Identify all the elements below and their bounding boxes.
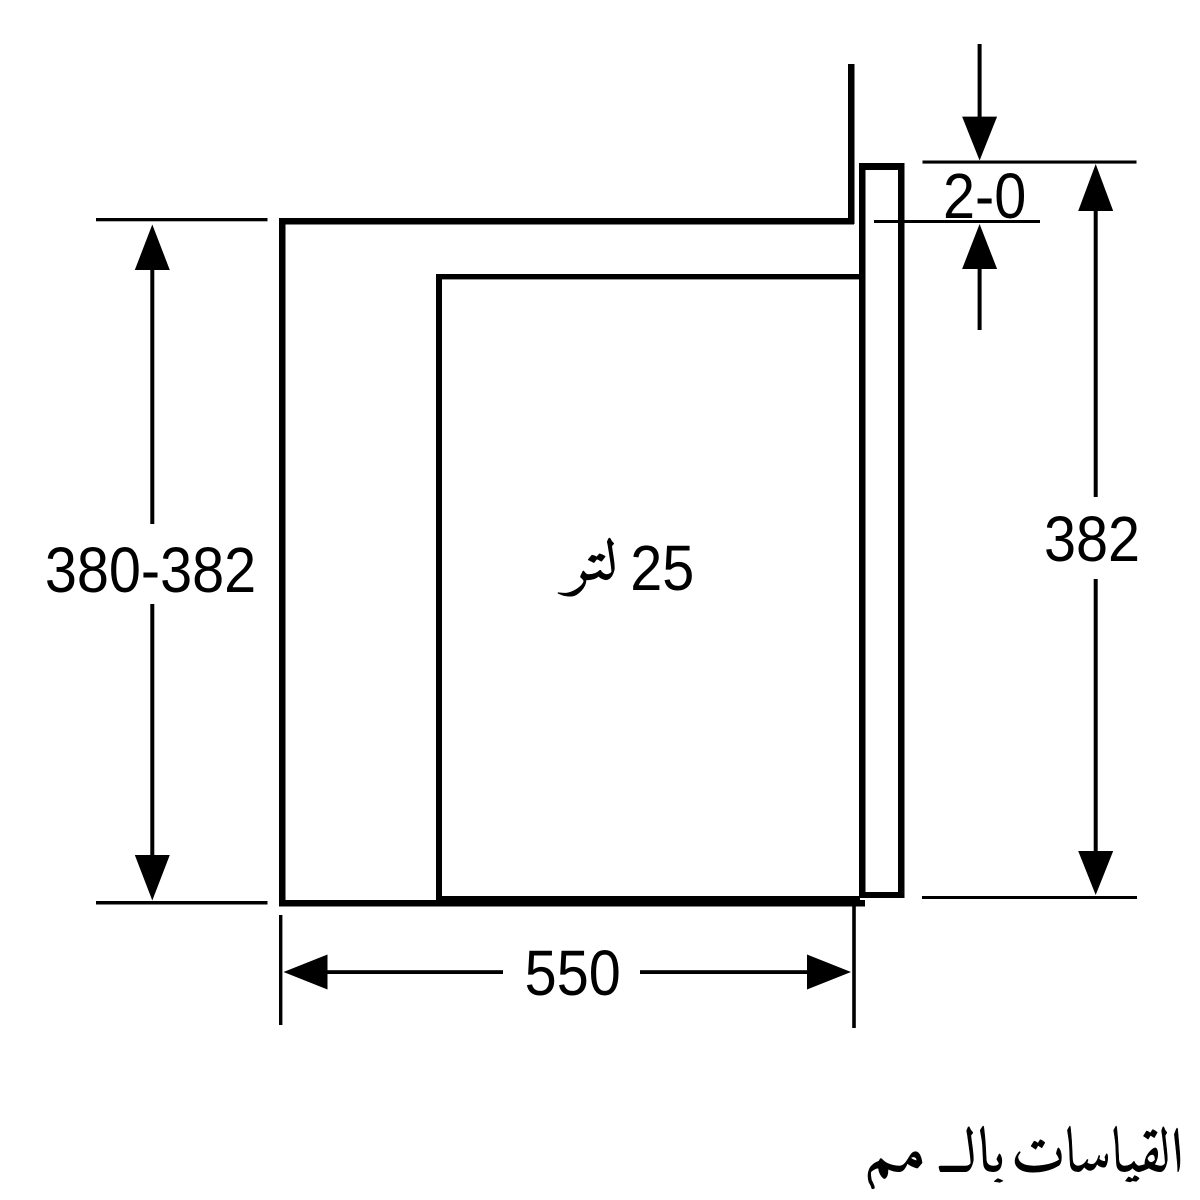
svg-text:382: 382 [1044,503,1140,574]
svg-text:2-0: 2-0 [943,160,1026,231]
svg-text:550: 550 [525,937,621,1008]
svg-text:380-382: 380-382 [45,534,256,605]
svg-text:25: 25 [630,532,694,603]
